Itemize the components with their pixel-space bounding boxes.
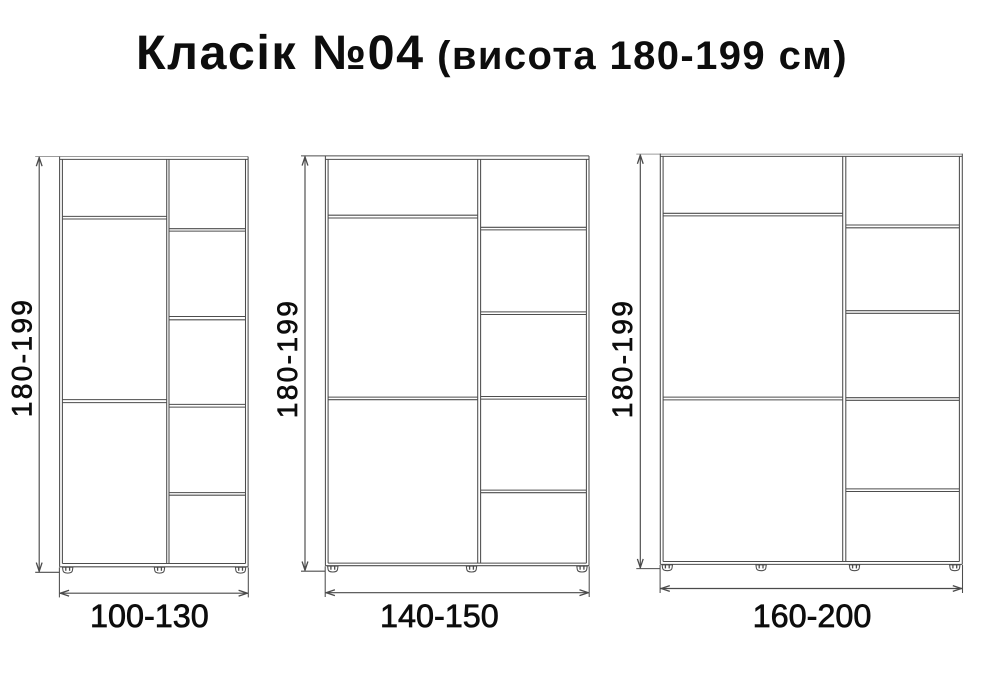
svg-text:180-199: 180-199	[6, 298, 38, 418]
svg-text:140-150: 140-150	[380, 598, 499, 634]
svg-text:180-199: 180-199	[271, 299, 303, 419]
svg-text:180-199: 180-199	[606, 299, 638, 419]
svg-text:Класік №04 (висота 180-199 см): Класік №04 (висота 180-199 см)	[136, 26, 848, 80]
svg-text:100-130: 100-130	[90, 598, 209, 634]
svg-text:160-200: 160-200	[753, 598, 872, 634]
